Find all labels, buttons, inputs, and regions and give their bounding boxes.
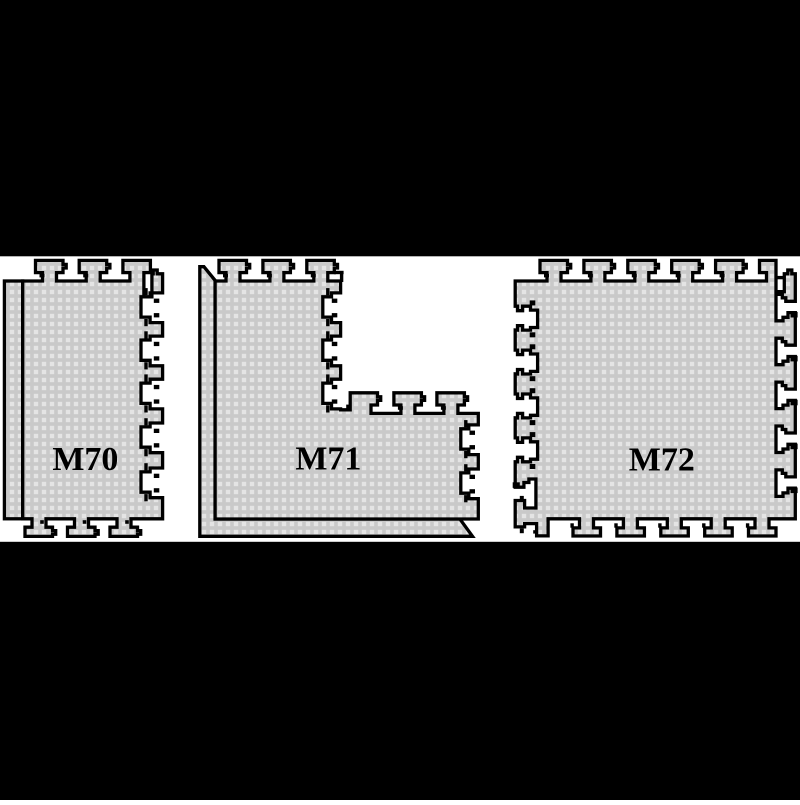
svg-text:M71: M71 bbox=[295, 441, 361, 478]
svg-text:M72: M72 bbox=[629, 441, 695, 478]
svg-text:M70: M70 bbox=[52, 441, 118, 478]
